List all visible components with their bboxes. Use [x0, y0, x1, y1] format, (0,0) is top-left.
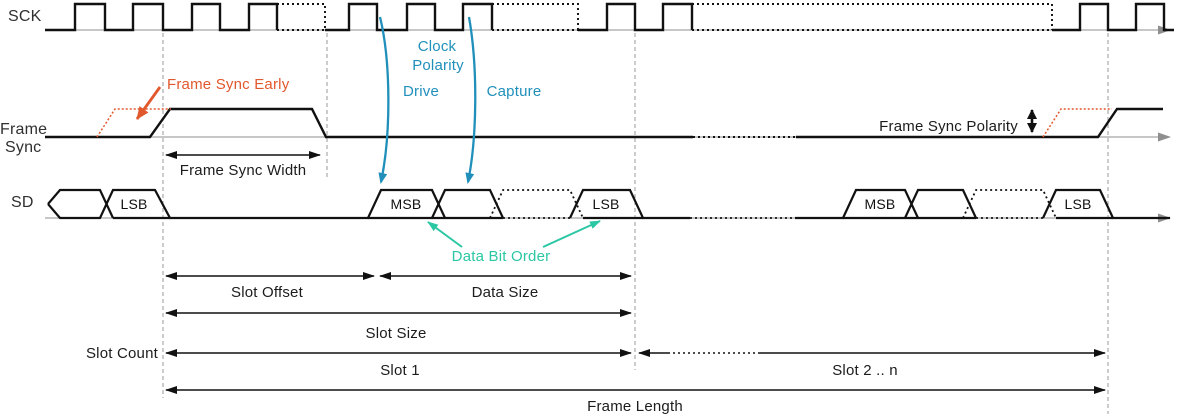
clock-polarity-label-line2: Polarity	[412, 57, 464, 74]
frame-sync-early-arrow	[137, 87, 160, 119]
timing-diagram-svg: SCK Frame Sync SD Frame Sync Early Clock…	[0, 0, 1184, 416]
frame-length-label: Frame Length	[587, 398, 683, 415]
drive-label: Drive	[403, 83, 439, 100]
slot-size-label: Slot Size	[366, 325, 427, 342]
sck-label: SCK	[8, 8, 42, 25]
sck-omitted-pulses-1	[277, 4, 325, 30]
sck-omitted-pulses-3	[692, 4, 1052, 30]
slot-count-label: Slot Count	[86, 345, 159, 362]
sck-waveform-2	[325, 4, 492, 30]
sck-waveform-4	[1052, 4, 1174, 30]
sck-omitted-pulses-2	[492, 4, 578, 30]
slot-offset-label: Slot Offset	[231, 284, 304, 301]
clock-polarity-label-line1: Clock	[418, 38, 457, 55]
sd-slot2-msb-cell-label: MSB	[865, 196, 896, 212]
data-bit-order-arrow-msb	[428, 222, 462, 247]
sd-slot0-lsb-cell-label: LSB	[120, 196, 147, 212]
data-size-label: Data Size	[472, 284, 539, 301]
sd-slot0-chain	[48, 190, 445, 218]
sd-slot2-lsb-cell-label: LSB	[1064, 196, 1091, 212]
frame-sync-width-label: Frame Sync Width	[180, 162, 307, 179]
sd-slot1-omitted-cell	[490, 190, 583, 218]
capture-arrow	[468, 17, 475, 182]
slot-2-n-label: Slot 2 .. n	[832, 362, 898, 379]
frame-sync-label-line1: Frame	[0, 121, 47, 138]
sd-slot1-lsb-top	[570, 190, 690, 218]
capture-label: Capture	[487, 83, 542, 100]
sai-timing-diagram: SCK Frame Sync SD Frame Sync Early Clock…	[0, 0, 1184, 416]
data-bit-order-label: Data Bit Order	[452, 248, 551, 265]
frame-sync-early-label: Frame Sync Early	[167, 76, 290, 93]
sd-slot1-msb-cell-label: MSB	[391, 196, 422, 212]
frame-sync-label-line2: Sync	[5, 139, 41, 156]
sd-slot2-lsb-top	[1043, 190, 1170, 218]
sck-waveform-3	[578, 4, 692, 30]
sd-slot1-lsb-cell-label: LSB	[592, 196, 619, 212]
sd-slot2-omitted-cell	[963, 190, 1056, 218]
sd-slot2-msb-top	[795, 190, 918, 218]
sd-label: SD	[11, 194, 34, 211]
drive-arrow	[380, 17, 388, 182]
data-bit-order-arrow-lsb	[543, 221, 600, 247]
slot-1-label: Slot 1	[380, 362, 420, 379]
sck-waveform-1	[45, 4, 277, 30]
frame-sync-polarity-label: Frame Sync Polarity	[879, 118, 1018, 135]
